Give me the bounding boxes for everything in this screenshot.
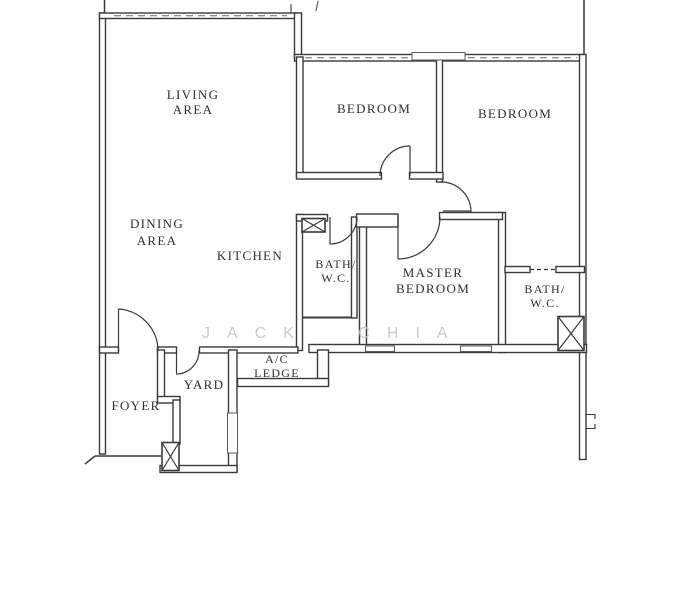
room-label-foyer: FOYER bbox=[111, 398, 160, 413]
window-yard-wall bbox=[228, 413, 238, 453]
shaft-icon-yard bbox=[162, 443, 179, 471]
room-label-bath-wc-2: BATH/ W.C. bbox=[524, 282, 565, 310]
door-arc-entrance bbox=[119, 309, 159, 351]
stub-top-mid bbox=[316, 1, 318, 11]
room-label-bedroom-1: BEDROOM bbox=[337, 101, 411, 116]
floor-plan-canvas: JACK CHIA LIVING AREA DINING AREA KITCHE… bbox=[0, 0, 684, 600]
door-arc-master-bedroom bbox=[398, 217, 440, 259]
room-label-yard: YARD bbox=[184, 377, 225, 392]
floor-plan-drawing bbox=[0, 0, 684, 600]
room-label-kitchen: KITCHEN bbox=[217, 248, 283, 263]
right-wall-joint-marks bbox=[586, 415, 595, 429]
shaft-icon-bath1 bbox=[302, 219, 325, 233]
watermark-text: JACK CHIA bbox=[202, 325, 465, 343]
door-arc-bedroom1 bbox=[380, 146, 410, 176]
corner-tick-bottom-left bbox=[85, 456, 95, 464]
door-arc-bedroom2 bbox=[441, 182, 471, 212]
glazing-dashes bbox=[114, 16, 577, 58]
door-arc-yard bbox=[176, 351, 199, 374]
window-master-bottom-2 bbox=[461, 346, 492, 352]
room-label-ac-ledge: A/C LEDGE bbox=[254, 352, 300, 380]
room-label-master-bedroom: MASTER BEDROOM bbox=[396, 265, 470, 297]
room-label-living-area: LIVING AREA bbox=[167, 87, 220, 117]
room-label-bedroom-2: BEDROOM bbox=[478, 106, 552, 121]
room-label-dining-area: DINING AREA bbox=[130, 215, 184, 249]
window-bedroom-top bbox=[412, 53, 465, 61]
window-master-bottom-1 bbox=[366, 346, 395, 352]
room-label-bath-wc-1: BATH/ W.C. bbox=[315, 257, 356, 285]
shaft-icon-bath2 bbox=[558, 317, 584, 351]
